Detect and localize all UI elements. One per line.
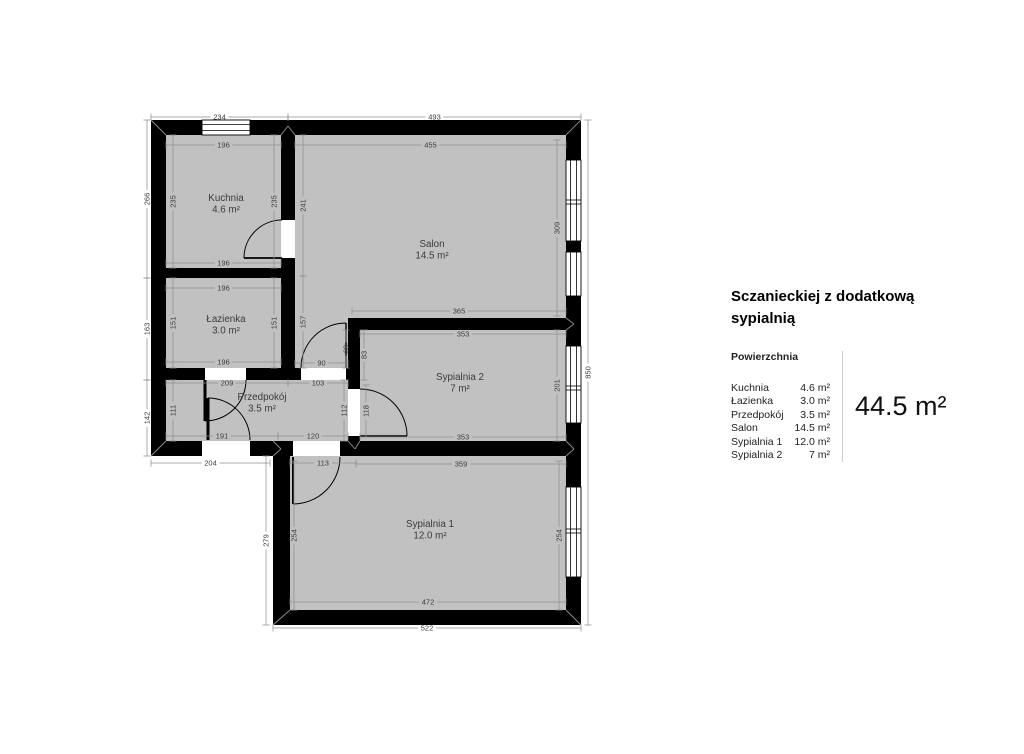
- dimension-label: 103: [312, 379, 325, 388]
- window-frame: [566, 252, 581, 296]
- room-name: Salon: [419, 239, 444, 250]
- total-area: 44.5 m²: [855, 391, 947, 422]
- room-area: 3.5 m²: [248, 404, 277, 415]
- dimension-label: 209: [221, 379, 234, 388]
- dimension-label: 112: [340, 405, 349, 417]
- dimension: 266: [143, 120, 152, 278]
- area-row: Sypialnia 112.0 m²: [731, 436, 830, 449]
- room-area: 7 m²: [450, 384, 470, 395]
- dimension-label: 204: [204, 459, 217, 468]
- door-opening: [281, 220, 295, 258]
- dimension-label: 69: [342, 345, 351, 353]
- dimension-label: 234: [213, 113, 226, 122]
- door-opening: [348, 389, 360, 436]
- window-frame: [202, 120, 250, 135]
- dimension-label: 90: [317, 359, 325, 368]
- dimension-label: 196: [217, 284, 230, 293]
- dimension-label: 157: [299, 316, 308, 329]
- dimension: 279: [262, 456, 271, 625]
- dimension-label: 353: [457, 330, 470, 339]
- dimension-label: 365: [453, 307, 466, 316]
- area-table-heading: Powierzchnia: [731, 351, 830, 363]
- room-area: 12.0 m²: [413, 531, 447, 542]
- dimension-label: 111: [169, 405, 178, 416]
- door-opening: [202, 441, 250, 456]
- room-label: Salon14.5 m²: [415, 239, 449, 262]
- dimension-label: 83: [360, 351, 369, 359]
- area-row-value: 3.0 m²: [800, 395, 830, 408]
- dimension-label: 196: [217, 358, 230, 367]
- area-row-value: 14.5 m²: [794, 422, 830, 435]
- window-frame: [566, 346, 581, 423]
- window: [566, 252, 581, 296]
- wall: [151, 135, 166, 456]
- door-opening: [293, 441, 340, 456]
- listing-title-line1: Sczanieckiej z dodatkową: [731, 288, 914, 305]
- area-row: Kuchnia4.6 m²: [731, 382, 830, 395]
- dimension-label: 254: [555, 529, 564, 542]
- area-row: Łazienka3.0 m²: [731, 395, 830, 408]
- room-name: Kuchnia: [208, 193, 244, 204]
- area-row-name: Sypialnia 1: [731, 436, 782, 449]
- dimension-label: 254: [290, 529, 299, 542]
- dimension-label: 113: [317, 459, 329, 468]
- wall: [151, 268, 295, 278]
- area-rows: Kuchnia4.6 m²Łazienka3.0 m²Przedpokój3.5…: [731, 382, 830, 462]
- area-row-name: Łazienka: [731, 395, 773, 408]
- dimension-label: 493: [428, 113, 441, 122]
- window: [566, 160, 581, 241]
- dimension-label: 201: [553, 379, 562, 392]
- dimension-label: 266: [143, 193, 152, 206]
- dimension-label: 118: [362, 405, 371, 417]
- total-area-wrap: 44.5 m²: [855, 351, 947, 462]
- area-row: Przedpokój3.5 m²: [731, 409, 830, 422]
- room-area: 4.6 m²: [212, 205, 241, 216]
- dimension-label: 472: [422, 598, 435, 607]
- dimension: 204: [151, 459, 270, 468]
- dimension-label: 196: [217, 259, 230, 268]
- room-name: Przedpokój: [237, 392, 286, 403]
- area-row-value: 12.0 m²: [794, 436, 830, 449]
- area-row: Salon14.5 m²: [731, 422, 830, 435]
- area-row-name: Salon: [731, 422, 758, 435]
- room-area: 3.0 m²: [212, 326, 241, 337]
- dimension-label: 235: [169, 195, 178, 208]
- wall: [273, 456, 290, 625]
- wall: [281, 278, 295, 368]
- dimension-label: 235: [270, 195, 279, 208]
- dimension-label: 279: [262, 534, 271, 547]
- dimension: 850: [584, 120, 593, 625]
- area-row-name: Kuchnia: [731, 382, 769, 395]
- dimension-label: 353: [457, 433, 470, 442]
- window: [566, 346, 581, 423]
- room-area: 14.5 m²: [415, 251, 449, 262]
- dimension: 142: [143, 380, 152, 456]
- vertical-divider: [842, 351, 843, 462]
- dimension-label: 241: [299, 199, 308, 212]
- dimension-label: 359: [455, 460, 468, 469]
- room-name: Sypialnia 2: [436, 372, 484, 383]
- dimension: 522: [273, 624, 581, 633]
- area-table: Powierzchnia Kuchnia4.6 m²Łazienka3.0 m²…: [731, 351, 830, 462]
- info-panel: Sczanieckiej z dodatkową sypialnią Powie…: [731, 286, 927, 462]
- dimension-label: 151: [270, 317, 279, 330]
- wall: [348, 318, 581, 330]
- area-row: Sypialnia 27 m²: [731, 449, 830, 462]
- window-frame: [566, 160, 581, 241]
- room-name: Sypialnia 1: [406, 519, 454, 530]
- listing-title: Sczanieckiej z dodatkową sypialnią: [731, 286, 927, 330]
- dimension-label: 522: [421, 624, 434, 633]
- dimension-label: 142: [143, 412, 152, 425]
- area-row-value: 3.5 m²: [800, 409, 830, 422]
- area-row-value: 4.6 m²: [800, 382, 830, 395]
- area-summary: Powierzchnia Kuchnia4.6 m²Łazienka3.0 m²…: [731, 351, 927, 462]
- area-row-value: 7 m²: [809, 449, 830, 462]
- listing-title-line2: sypialnią: [731, 310, 795, 327]
- dimension-label: 120: [307, 432, 320, 441]
- dimension-label: 196: [217, 141, 230, 150]
- window: [566, 487, 581, 577]
- dimension-label: 163: [143, 323, 152, 336]
- room-name: Łazienka: [206, 314, 246, 325]
- dimension-label: 309: [553, 222, 562, 235]
- dimension-label: 455: [424, 141, 437, 150]
- area-row-name: Sypialnia 2: [731, 449, 782, 462]
- area-row-name: Przedpokój: [731, 409, 784, 422]
- dimension-label: 850: [584, 366, 593, 379]
- window: [202, 120, 250, 135]
- dimension-label: 151: [169, 317, 178, 330]
- dimension-label: 191: [216, 432, 229, 441]
- room-label: Kuchnia4.6 m²: [208, 193, 244, 216]
- window-frame: [566, 487, 581, 577]
- dimension: 163: [143, 278, 152, 380]
